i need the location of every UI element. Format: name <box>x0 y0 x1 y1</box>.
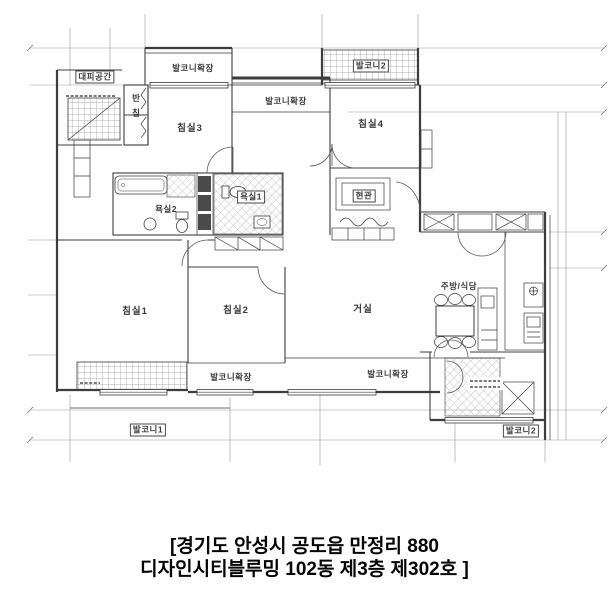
label-bedroom2: 침실2 <box>223 302 249 316</box>
address-line-2: 디자인시티블루밍 102동 제3층 제302호 ] <box>0 558 609 581</box>
bath1-tile <box>214 174 282 234</box>
label-bedroom4: 침실4 <box>358 116 384 130</box>
dining-table <box>436 306 474 336</box>
bedroom1-closet-hatch <box>77 362 187 390</box>
label-balcony2-bottom: 발코니2 <box>503 425 539 438</box>
address-caption: [경기도 안성시 공도읍 만정리 880 디자인시티블루밍 102동 제3층 제… <box>0 535 609 581</box>
label-balcony-ext-bottom-center: 발코니확장 <box>367 368 409 380</box>
address-line-1: [경기도 안성시 공도읍 만정리 880 <box>0 535 609 558</box>
label-banchim-2: 침 <box>132 107 140 119</box>
label-living-room: 거실 <box>353 301 372 315</box>
label-balcony-ext-top-left: 발코니확장 <box>172 62 214 74</box>
label-bedroom1: 침실1 <box>122 303 148 317</box>
bath1-toilet-icon <box>222 186 229 198</box>
label-banchim-1: 반 <box>132 92 140 104</box>
bath2-sink-icon <box>144 218 156 230</box>
bath2-tile <box>167 175 195 197</box>
floorplan-drawing: 대피공간 발코니확장 발코니2 발코니확장 침실3 침실4 반 침 욕실2 욕실… <box>0 0 609 505</box>
label-escape-space: 대피공간 <box>75 71 114 84</box>
label-entrance: 현관 <box>353 190 376 203</box>
duct-shafts <box>198 176 211 230</box>
bath2-toilet-icon <box>176 212 188 219</box>
label-balcony2-top: 발코니2 <box>353 60 389 73</box>
label-balcony-ext-bottom-left: 발코니확장 <box>210 371 252 383</box>
label-bath1: 욕실1 <box>237 191 265 204</box>
label-kitchen-dining: 주방/식당 <box>441 280 477 292</box>
label-balcony-ext-top-center: 발코니확장 <box>265 95 307 107</box>
floorplan-page: 대피공간 발코니확장 발코니2 발코니확장 침실3 침실4 반 침 욕실2 욕실… <box>0 0 609 600</box>
label-bath2: 욕실2 <box>155 203 177 215</box>
label-balcony1: 발코니1 <box>130 424 166 437</box>
label-bedroom3: 침실3 <box>177 120 203 134</box>
